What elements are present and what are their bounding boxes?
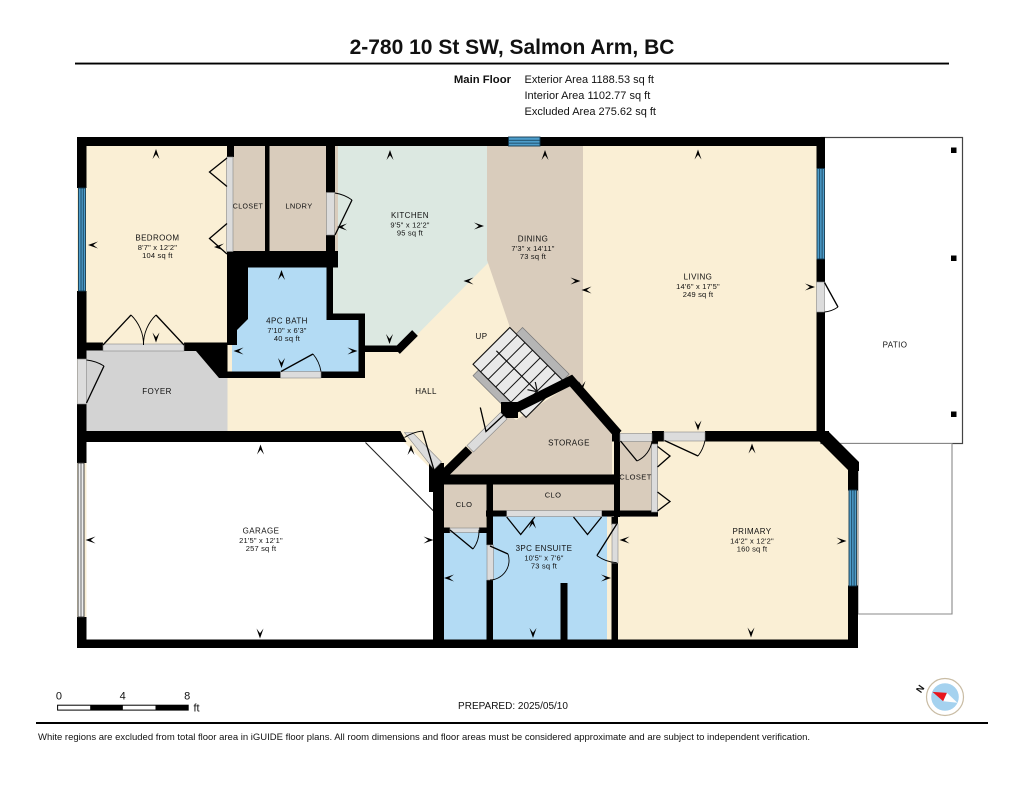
svg-text:4PC BATH: 4PC BATH (266, 317, 308, 326)
svg-text:KITCHEN: KITCHEN (391, 211, 429, 220)
svg-text:160 sq ft: 160 sq ft (737, 545, 768, 554)
svg-text:CLO: CLO (456, 500, 473, 509)
svg-text:249 sq ft: 249 sq ft (683, 290, 714, 299)
svg-text:Exterior Area 1188.53 sq ft: Exterior Area 1188.53 sq ft (525, 74, 654, 86)
svg-text:ft: ft (194, 703, 200, 715)
svg-text:DINING: DINING (518, 235, 548, 244)
svg-text:3PC ENSUITE: 3PC ENSUITE (516, 544, 573, 553)
svg-text:8: 8 (184, 691, 190, 703)
svg-text:73 sq ft: 73 sq ft (520, 252, 547, 261)
svg-text:4: 4 (120, 691, 126, 703)
svg-text:0: 0 (56, 691, 62, 703)
svg-text:257 sq ft: 257 sq ft (246, 544, 277, 553)
svg-text:HALL: HALL (415, 387, 437, 396)
svg-text:73 sq ft: 73 sq ft (531, 562, 558, 571)
svg-text:N: N (914, 683, 927, 695)
svg-text:CLO: CLO (545, 491, 562, 500)
svg-text:Interior Area 1102.77 sq ft: Interior Area 1102.77 sq ft (525, 90, 651, 102)
svg-text:40 sq ft: 40 sq ft (274, 334, 301, 343)
svg-text:GARAGE: GARAGE (243, 527, 280, 536)
svg-text:PATIO: PATIO (883, 341, 908, 350)
svg-text:CLOSET: CLOSET (233, 204, 264, 211)
svg-text:PRIMARY: PRIMARY (732, 527, 771, 536)
svg-text:FOYER: FOYER (142, 387, 172, 396)
svg-text:PREPARED: 2025/05/10: PREPARED: 2025/05/10 (458, 701, 568, 712)
svg-text:LIVING: LIVING (684, 273, 713, 282)
svg-text:Excluded Area 275.62 sq ft: Excluded Area 275.62 sq ft (525, 106, 656, 118)
svg-text:LNDRY: LNDRY (285, 202, 312, 211)
svg-text:STORAGE: STORAGE (548, 439, 590, 448)
svg-text:95 sq ft: 95 sq ft (397, 229, 424, 238)
svg-text:2-780 10 St SW, Salmon Arm, BC: 2-780 10 St SW, Salmon Arm, BC (350, 36, 675, 59)
svg-text:Main Floor: Main Floor (454, 74, 512, 86)
svg-text:BEDROOM: BEDROOM (135, 234, 179, 243)
svg-text:White regions are excluded fro: White regions are excluded from total fl… (38, 732, 810, 743)
svg-text:104 sq ft: 104 sq ft (142, 251, 173, 260)
svg-text:CLOSET: CLOSET (619, 473, 651, 482)
svg-text:UP: UP (476, 332, 488, 341)
